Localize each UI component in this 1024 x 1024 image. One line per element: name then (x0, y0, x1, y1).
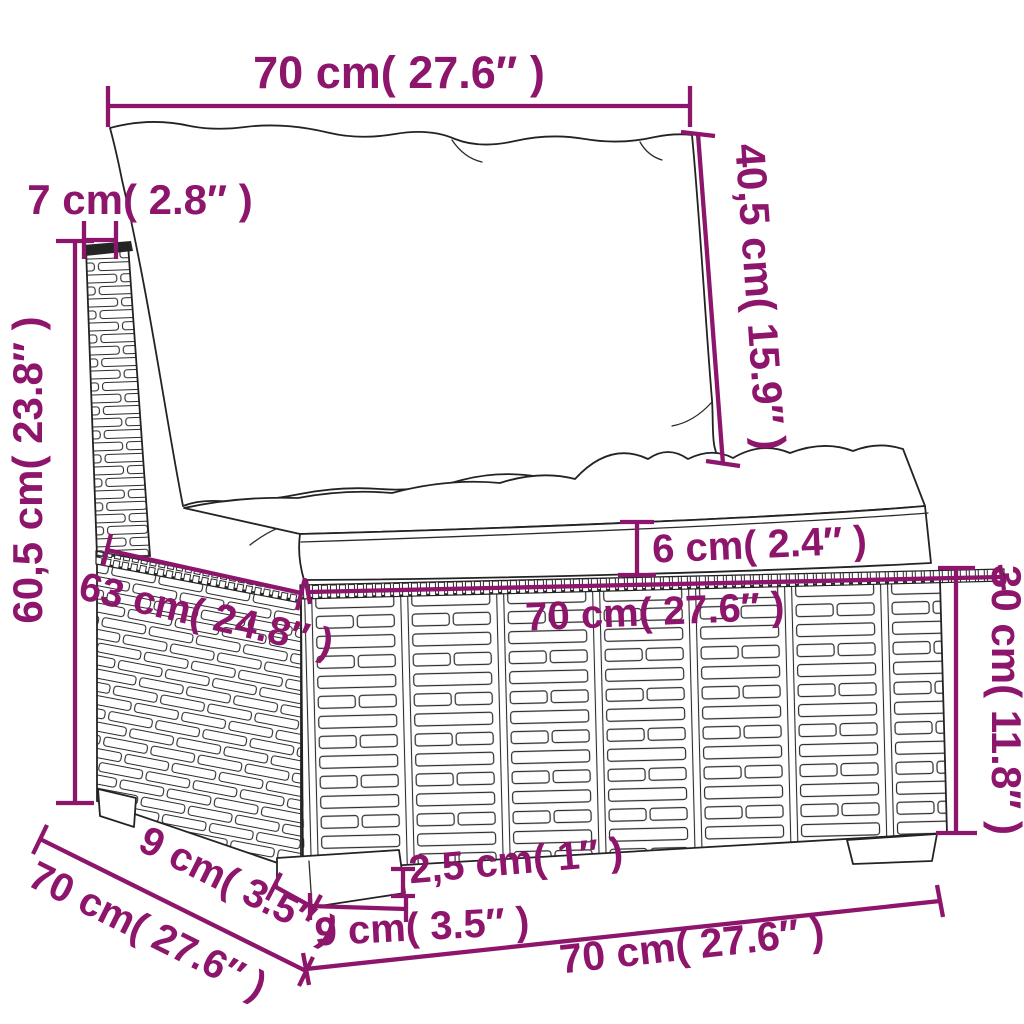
leg-front-right (847, 834, 937, 864)
dim-label-back-thickness: 7 cm( 2.8″ ) (27, 176, 253, 223)
backrest-post (83, 241, 150, 556)
dim-label-base-height: 30 cm( 11.8″ ) (983, 565, 1024, 835)
sofa-dimension-diagram: 70 cm( 27.6″ ) 7 cm( 2.8″ ) 60,5 cm( 23.… (0, 0, 1024, 1024)
diagram-canvas: 70 cm( 27.6″ ) 7 cm( 2.8″ ) 60,5 cm( 23.… (0, 0, 1024, 1024)
dim-label-total-height: 60,5 cm( 23.8″ ) (4, 316, 51, 623)
dim-total-height: 60,5 cm( 23.8″ ) (4, 241, 94, 803)
dim-label-bottom-width: 70 cm( 27.6″ ) (557, 908, 826, 983)
dim-back-cushion-width: 70 cm( 27.6″ ) (108, 47, 690, 127)
dim-label-back-width: 70 cm( 27.6″ ) (253, 47, 545, 98)
dim-base-height: 30 cm( 11.8″ ) (936, 565, 1024, 835)
dim-label-cushion-thickness: 6 cm( 2.4″ ) (651, 518, 868, 571)
backrest-post-weave (86, 244, 150, 556)
dim-tick (937, 885, 943, 917)
sofa-artwork (83, 122, 1004, 907)
dim-label-back-cushion-height: 40,5 cm( 15.9″ ) (726, 142, 794, 452)
